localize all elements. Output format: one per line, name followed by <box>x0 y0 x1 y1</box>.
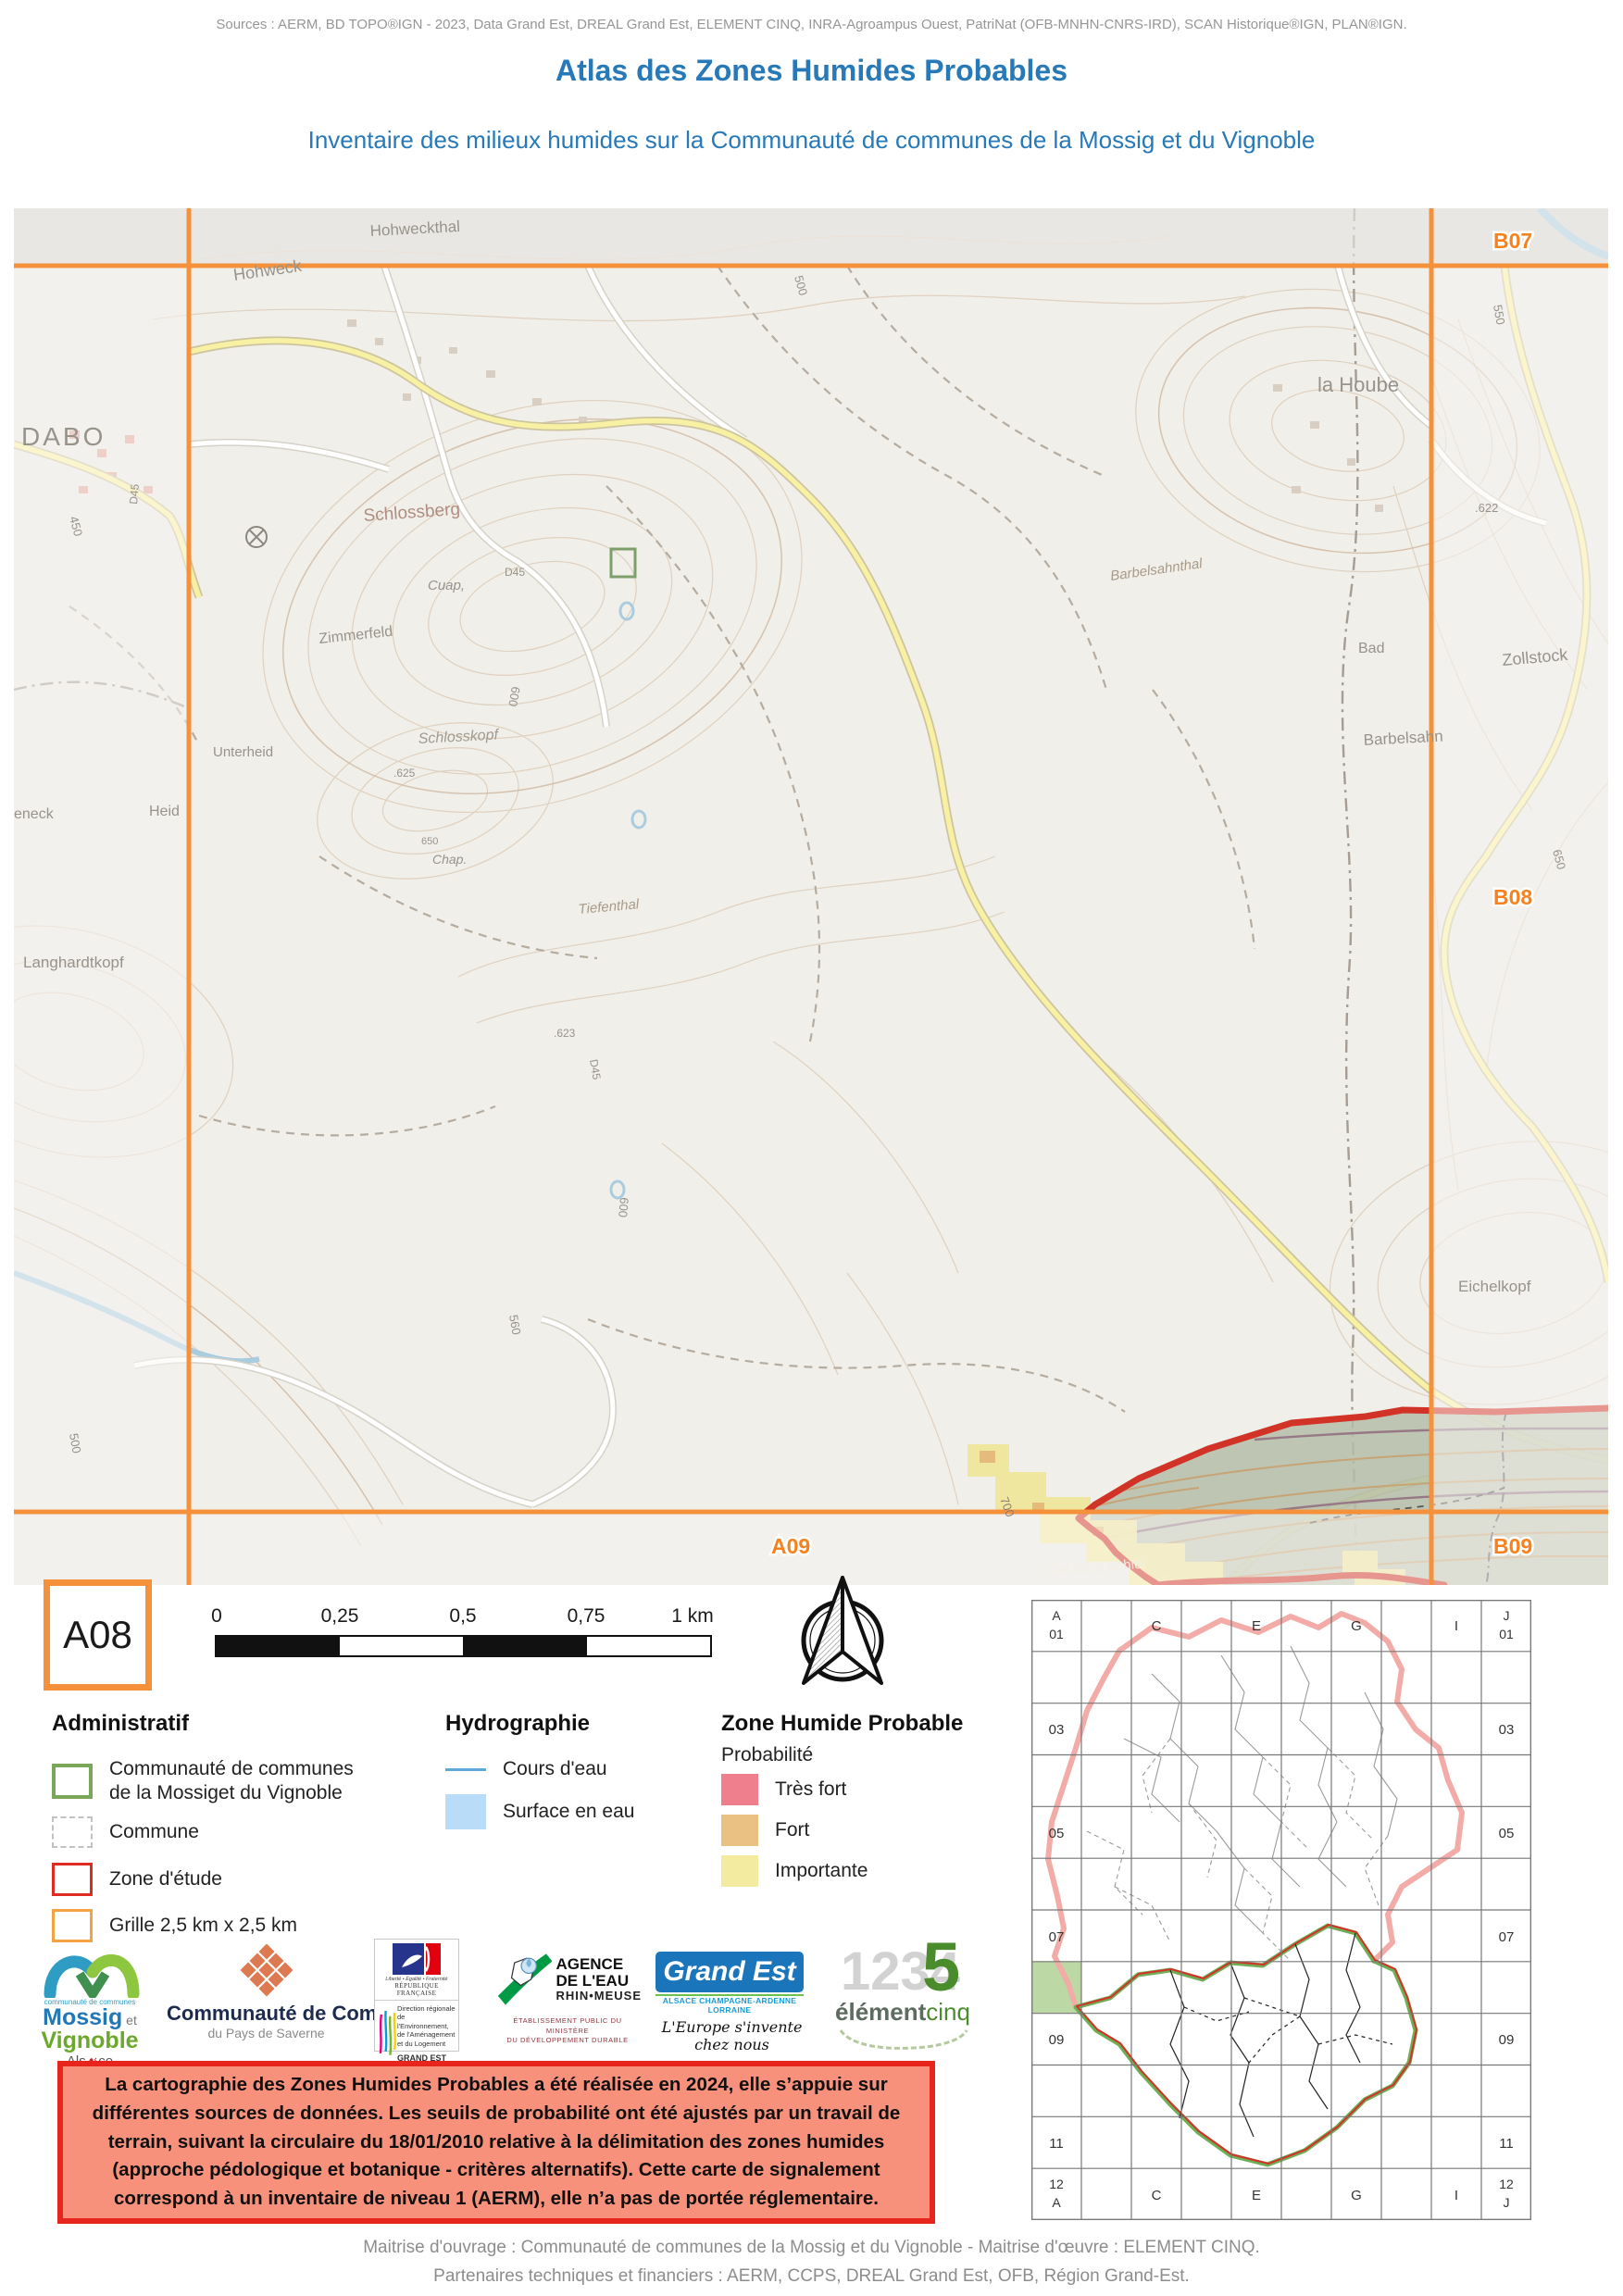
topographic-map: B07 B08 B09 A09 Hohweckthal Hohweck DABO… <box>14 208 1608 1585</box>
map-label: eneck <box>14 806 55 822</box>
legend-label: Communauté de communes <box>109 1757 354 1781</box>
grid-cell-label: B07 <box>1493 229 1532 253</box>
legend-label: Zone d'étude <box>109 1867 222 1891</box>
logo-agence-eau-rhin-meuse: AGENCE DE L'EAU RHIN•MEUSE ÉTABLISSEMENT… <box>493 1942 642 2046</box>
legend-item-cc: Communauté de communes de la Mossiget du… <box>52 1757 354 1806</box>
methodology-note-box: La cartographie des Zones Humides Probab… <box>57 2061 935 2224</box>
overview-label: A <box>1052 1608 1061 1623</box>
overview-label: 07 <box>1499 1929 1515 1945</box>
cc-swatch <box>52 1764 93 1799</box>
logo-text: Grand Est <box>655 1952 804 1992</box>
logo-text: DU DÉVELOPPEMENT DURABLE <box>493 2036 642 2046</box>
scale-tick: 0,5 <box>449 1605 476 1628</box>
map-label: 650 <box>421 836 438 847</box>
legend-item-fort: Fort <box>721 1815 809 1846</box>
logo-text: RHIN•MEUSE <box>556 1989 642 2003</box>
scale-tick: 0,75 <box>568 1605 606 1628</box>
map-label: Cuap, <box>428 578 465 593</box>
legend-item-cours-eau: Cours d'eau <box>445 1757 607 1781</box>
overview-label: 05 <box>1499 1826 1515 1841</box>
cours-eau-swatch <box>445 1768 486 1771</box>
sources-line: Sources : AERM, BD TOPO®IGN - 2023, Data… <box>0 17 1623 32</box>
overview-label: G <box>1351 1618 1362 1634</box>
overview-label: 09 <box>1049 2032 1065 2048</box>
scale-bar-ticks: 0 0,25 0,5 0,75 1 km <box>215 1605 712 1628</box>
overview-label: G <box>1351 2188 1362 2203</box>
methodology-note-text: La cartographie des Zones Humides Probab… <box>89 2071 904 2214</box>
legend-sub-probabilite: Probabilité <box>721 1744 813 1766</box>
overview-label: J <box>1504 2195 1510 2210</box>
map-cell-background <box>189 266 1431 1512</box>
logo-pays-de-saverne: Communauté de Communes du Pays de Savern… <box>167 1944 366 2040</box>
legend-label: Cours d'eau <box>503 1757 607 1781</box>
legend-label: Commune <box>109 1820 199 1844</box>
overview-label: 07 <box>1049 1929 1065 1945</box>
grid-cell-label: B09 <box>1493 1534 1532 1558</box>
mossig-m-icon <box>39 1944 141 1998</box>
current-cell-id: A08 <box>63 1613 132 1657</box>
logo-text: et du Logement <box>397 2040 456 2048</box>
map-label: .622 <box>1475 501 1498 515</box>
map-label: D45 <box>505 566 525 579</box>
overview-label: 09 <box>1499 2032 1515 2048</box>
element5-digits: 1234 5 <box>833 1940 972 2002</box>
map-label: Heid <box>149 804 180 819</box>
legend-item-grille: Grille 2,5 km x 2,5 km <box>52 1909 297 1942</box>
logo-text: RÉPUBLIQUE FRANÇAISE <box>379 1982 455 1997</box>
logo-mossig-vignoble: communauté de communes Mossig et Vignobl… <box>30 1944 150 2069</box>
legend-label: Fort <box>775 1818 809 1842</box>
legend-label: Importante <box>775 1859 868 1883</box>
aerm-france-icon <box>493 1942 552 2016</box>
logo-text: de l'Aménagement <box>397 2030 456 2039</box>
current-cell-badge: A08 <box>44 1579 152 1691</box>
logo-text: ÉTABLISSEMENT PUBLIC DU MINISTÈRE <box>493 2016 642 2036</box>
map-label: Langhardtkopf <box>23 954 124 971</box>
map-label: DABO <box>21 422 106 451</box>
logo-text: L'Europe s'invente chez nous <box>655 2018 808 2053</box>
map-label: .625 <box>393 767 416 780</box>
page-title: Atlas des Zones Humides Probables <box>0 54 1623 88</box>
legend-label: de la Mossiget du Vignoble <box>109 1781 354 1805</box>
overview-label: 05 <box>1049 1826 1065 1841</box>
logo-text: 5 <box>922 1928 960 2006</box>
logo-text: AGENCE <box>556 1956 642 1973</box>
overview-label: 03 <box>1049 1722 1065 1738</box>
grid-cell-label: A09 <box>771 1534 810 1558</box>
overview-label: 12 <box>1499 2177 1514 2191</box>
north-arrow-icon <box>785 1574 900 1695</box>
legend-item-zone-etude: Zone d'étude <box>52 1863 222 1896</box>
logo-text: ALSACE CHAMPAGNE-ARDENNE LORRAINE <box>655 1994 804 2015</box>
overview-label: E <box>1252 1618 1261 1634</box>
map-label: D45 <box>127 483 142 505</box>
legend-label: Surface en eau <box>503 1800 634 1824</box>
scale-bar: 0 0,25 0,5 0,75 1 km <box>215 1605 712 1663</box>
logo-text: Direction régionale <box>397 2004 456 2013</box>
map-canvas: B07 B08 B09 A09 Hohweckthal Hohweck DABO… <box>14 208 1608 1585</box>
overview-label: A <box>1052 2195 1061 2210</box>
tres-fort-swatch <box>721 1774 758 1805</box>
overview-label: C <box>1152 1618 1162 1634</box>
overview-label: 03 <box>1499 1722 1515 1738</box>
overview-label: 01 <box>1049 1627 1064 1641</box>
atlas-page: { "colors": { "accent_orange": "#F5913A"… <box>0 0 1623 2296</box>
logo-dreal-grand-est: Liberté • Égalité • Fraternité RÉPUBLIQU… <box>374 1939 459 2052</box>
legend-header-administratif: Administratif <box>52 1711 189 1737</box>
scale-tick: 1 km <box>671 1605 714 1628</box>
grid-cell-label: B08 <box>1493 885 1532 909</box>
legend-label: Grille 2,5 km x 2,5 km <box>109 1914 297 1938</box>
overview-label: 01 <box>1499 1627 1514 1641</box>
map-label: Bad <box>1358 641 1384 656</box>
scale-bar-graphic <box>215 1635 712 1657</box>
logo-text: Communauté de Communes <box>167 2002 366 2026</box>
commune-swatch <box>52 1816 93 1848</box>
map-label: .623 <box>554 1027 576 1040</box>
page-subtitle: Inventaire des milieux humides sur la Co… <box>0 126 1623 155</box>
legend-header-hydrographie: Hydrographie <box>445 1711 590 1737</box>
map-label: Unterheid <box>213 744 273 760</box>
map-label: la Hoube <box>1317 373 1399 396</box>
logo-text: Mossig <box>43 2004 122 2030</box>
overview-label: 11 <box>1499 2136 1514 2152</box>
footer-line: Maitrise d'ouvrage : Communauté de commu… <box>0 2233 1623 2262</box>
map-label: Chap. <box>432 852 467 867</box>
element5-swoosh-icon <box>833 2027 972 2051</box>
importante-swatch <box>721 1855 758 1887</box>
overview-label: C <box>1152 2188 1162 2203</box>
zone-etude-swatch <box>52 1863 93 1896</box>
surface-eau-swatch <box>445 1794 486 1829</box>
logo-text: de l'Environnement, <box>397 2013 456 2030</box>
overview-label: 12 <box>1049 2177 1064 2191</box>
logo-text: DE L'EAU <box>556 1973 642 1990</box>
overview-label: I <box>1454 2188 1458 2203</box>
logo-text: du Pays de Saverne <box>167 2026 366 2040</box>
footer-credits: Maitrise d'ouvrage : Communauté de commu… <box>0 2233 1623 2290</box>
scale-tick: 0,25 <box>321 1605 359 1628</box>
overview-label: I <box>1454 1618 1458 1634</box>
legend-item-tres-fort: Très fort <box>721 1774 846 1805</box>
grille-swatch <box>52 1909 93 1942</box>
legend-item-surface-eau: Surface en eau <box>445 1794 634 1829</box>
dreal-strokes-icon <box>378 2004 397 2058</box>
logo-text: et <box>122 2013 137 2028</box>
legend-label: Très fort <box>775 1778 846 1802</box>
overview-locator-map: A 01 J 01 12 A 12 J C E G I C E G I 03 0… <box>1031 1600 1531 2225</box>
logo-element-cinq: 1234 5 élémentcinq <box>833 1940 972 2055</box>
legend-header-zhp: Zone Humide Probable <box>721 1711 963 1737</box>
legend-item-commune: Commune <box>52 1816 199 1848</box>
footer-line: Partenaires techniques et financiers : A… <box>0 2262 1623 2290</box>
map-label: Eichelkopf <box>1458 1278 1531 1295</box>
overview-label: E <box>1252 2188 1261 2203</box>
legend-item-importante: Importante <box>721 1855 868 1887</box>
overview-label: 11 <box>1049 2136 1064 2152</box>
logo-text: Vignoble <box>41 2028 138 2053</box>
map-label: 600 <box>616 1197 631 1218</box>
saverne-diamonds-icon <box>232 1944 301 2002</box>
republique-flag-icon <box>389 1943 444 1975</box>
logo-grand-est: Grand Est ALSACE CHAMPAGNE-ARDENNE LORRA… <box>655 1952 808 2053</box>
overview-label: J <box>1504 1608 1510 1623</box>
fort-swatch <box>721 1815 758 1846</box>
scale-tick: 0 <box>211 1605 222 1628</box>
